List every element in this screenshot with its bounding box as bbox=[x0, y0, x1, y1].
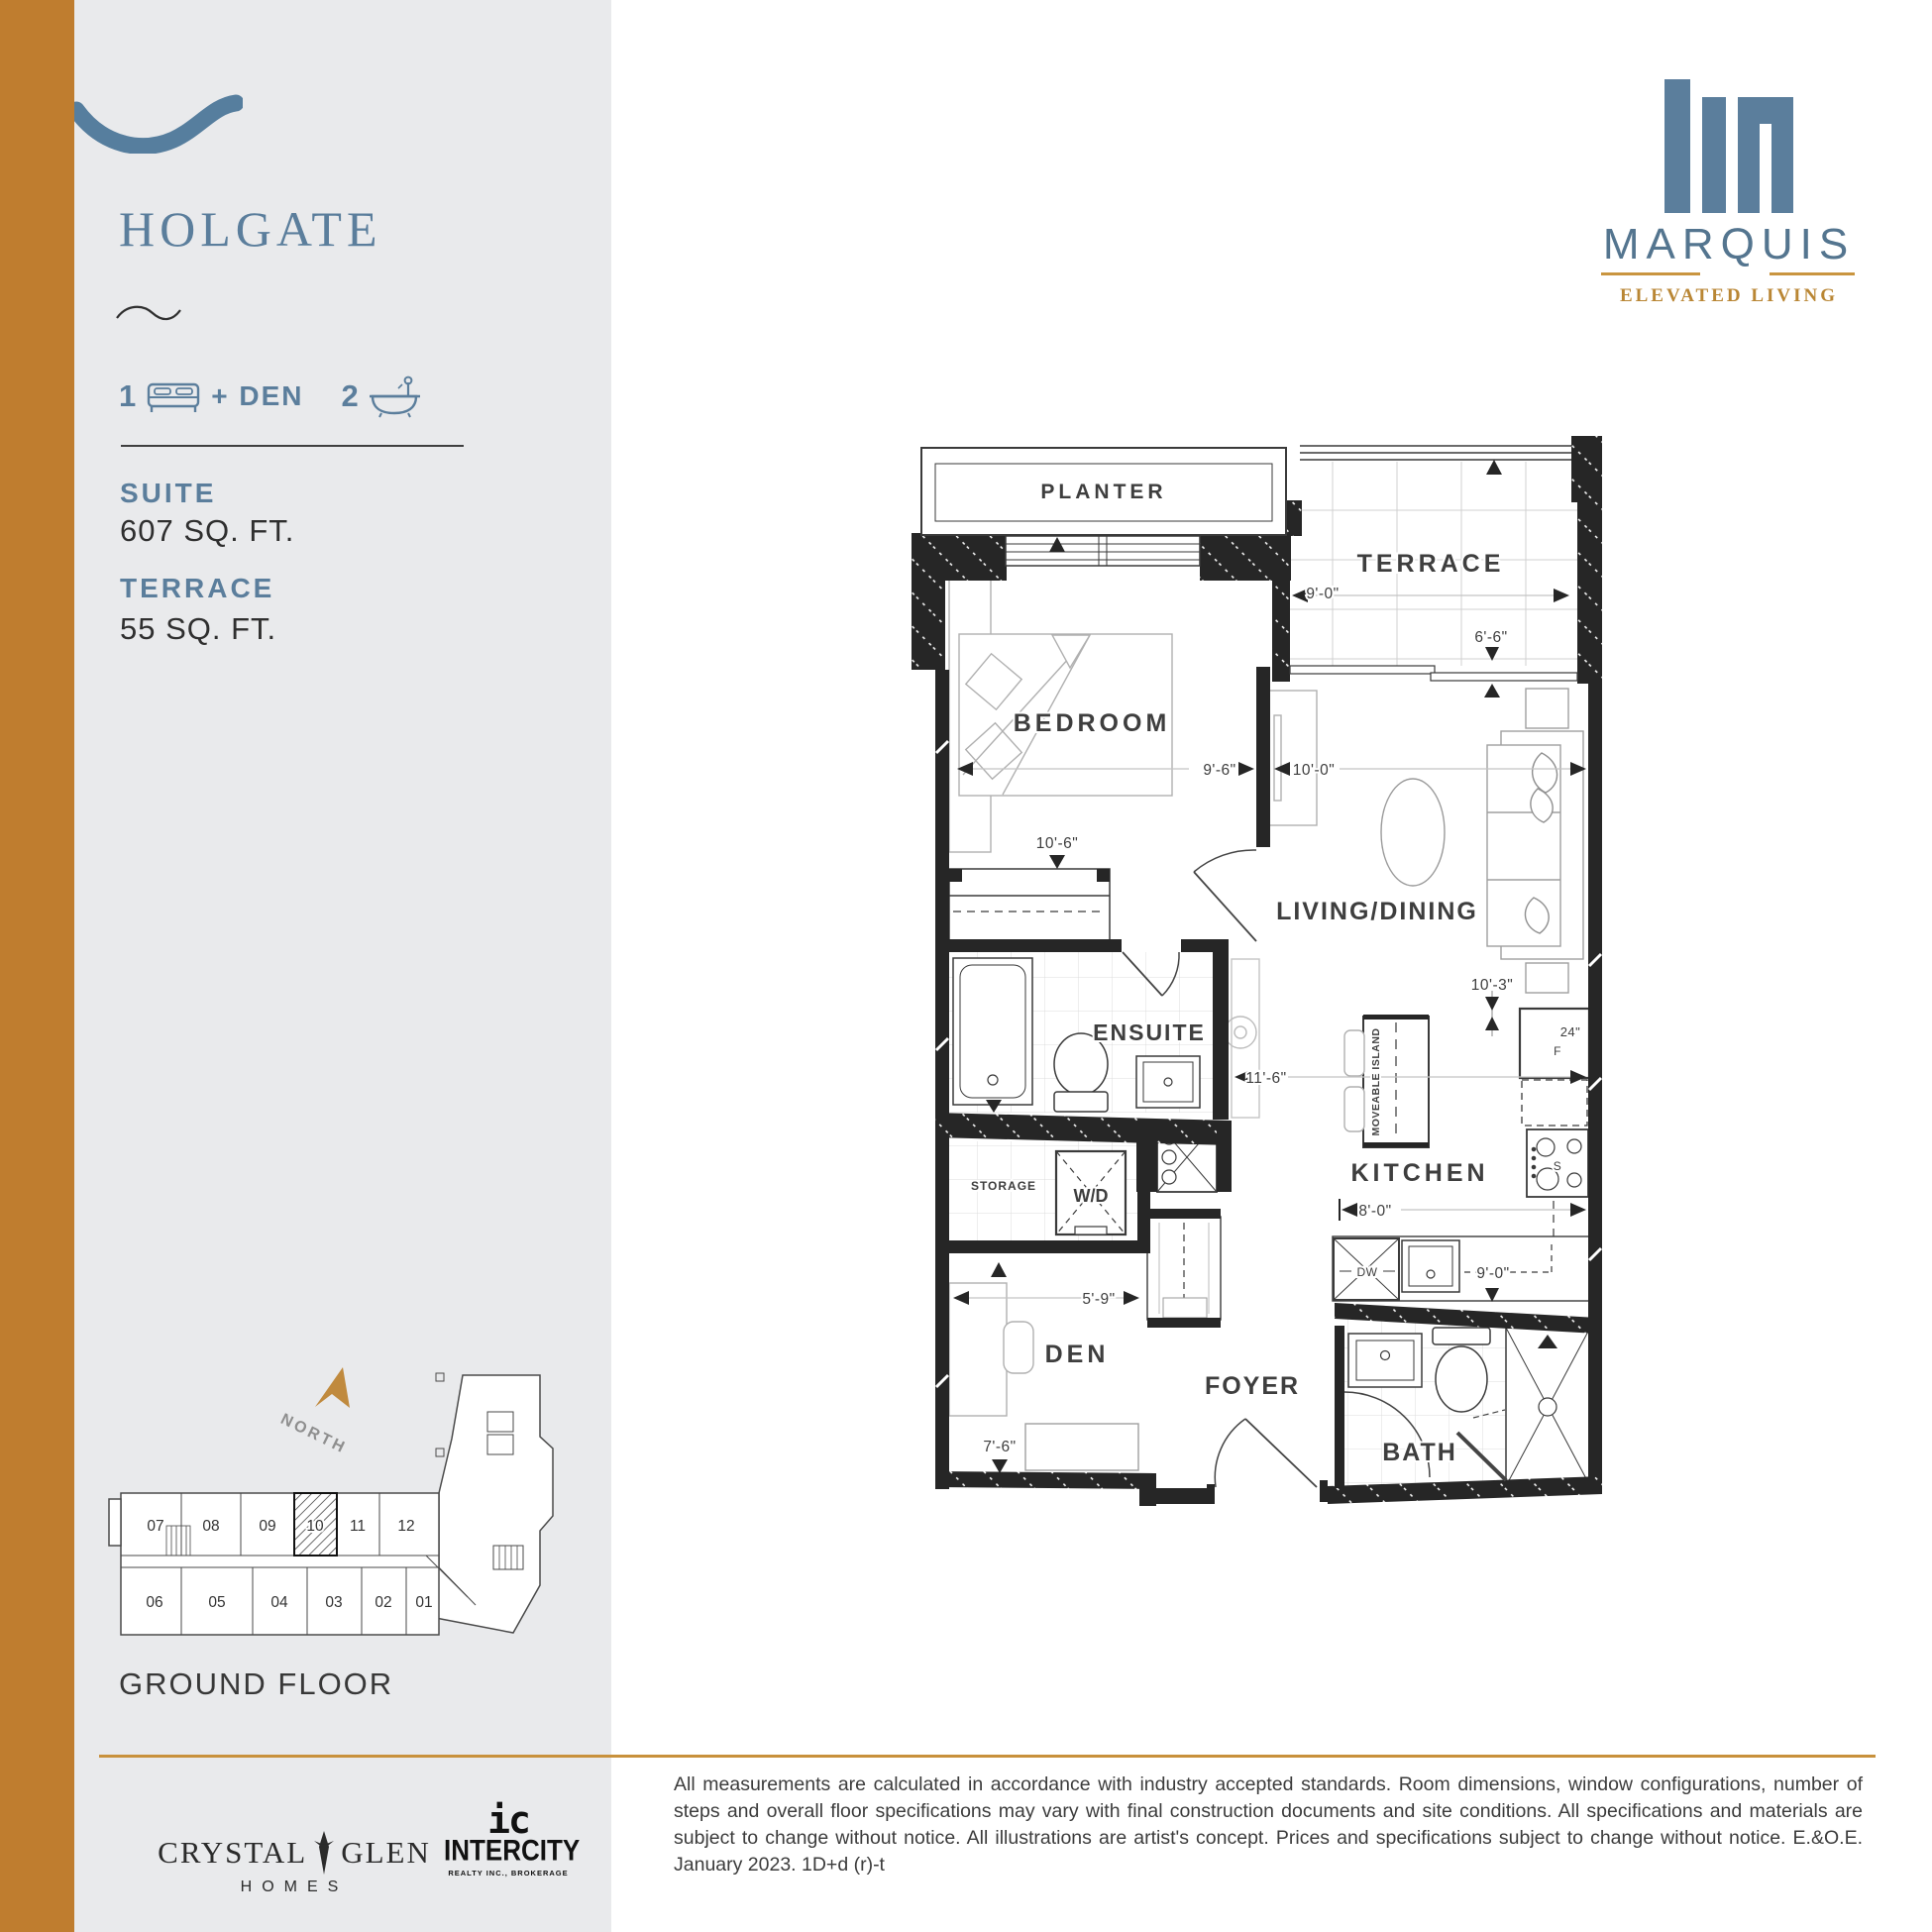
svg-text:08: 08 bbox=[202, 1518, 219, 1535]
crystal-glen-left: CRYSTAL bbox=[158, 1835, 307, 1871]
keyplan-title: GROUND FLOOR bbox=[119, 1666, 393, 1702]
tilde-icon bbox=[115, 300, 184, 328]
svg-text:7'-6": 7'-6" bbox=[983, 1439, 1016, 1455]
bed-bath-row: 1 + DEN 2 bbox=[119, 375, 422, 418]
intercity-logo: ic INTERCITY REALTY INC., BROKERAGE bbox=[444, 1805, 573, 1878]
svg-text:9'-0": 9'-0" bbox=[1476, 1265, 1509, 1282]
intercity-name: INTERCITY bbox=[444, 1833, 573, 1869]
svg-text:02: 02 bbox=[375, 1594, 391, 1611]
suite-label: SUITE bbox=[120, 478, 216, 509]
marquis-m-icon bbox=[1664, 79, 1793, 213]
svg-text:STORAGE: STORAGE bbox=[971, 1179, 1036, 1193]
svg-text:LIVING/DINING: LIVING/DINING bbox=[1276, 898, 1478, 925]
svg-text:07: 07 bbox=[147, 1518, 163, 1535]
brand-name: MARQUIS bbox=[1585, 220, 1873, 269]
legal-disclaimer: All measurements are calculated in accor… bbox=[674, 1771, 1863, 1878]
keyplan: 070809101112060504030201 bbox=[99, 1359, 565, 1647]
suite-area: 607 SQ. FT. bbox=[120, 513, 294, 549]
svg-text:10'-3": 10'-3" bbox=[1471, 977, 1513, 994]
sidebar-divider bbox=[121, 445, 464, 447]
bed-count: 1 bbox=[119, 378, 136, 414]
unit-title: HOLGATE bbox=[119, 200, 382, 258]
svg-text:06: 06 bbox=[146, 1594, 162, 1611]
bath-count: 2 bbox=[342, 378, 359, 414]
svg-text:TERRACE: TERRACE bbox=[1357, 550, 1505, 578]
svg-text:DEN: DEN bbox=[1045, 1341, 1110, 1368]
svg-text:W/D: W/D bbox=[1074, 1186, 1109, 1206]
svg-text:05: 05 bbox=[208, 1594, 225, 1611]
svg-text:BATH: BATH bbox=[1382, 1439, 1457, 1466]
svg-text:10'-0": 10'-0" bbox=[1293, 762, 1335, 779]
intercity-mark: ic bbox=[444, 1805, 573, 1835]
unit-floorplan: PLANTERTERRACEBEDROOMLIVING/DININGENSUIT… bbox=[897, 436, 1615, 1516]
wave-icon bbox=[74, 94, 243, 154]
svg-text:DW: DW bbox=[1357, 1265, 1378, 1279]
svg-text:FOYER: FOYER bbox=[1205, 1372, 1300, 1400]
intercity-tagline: REALTY INC., BROKERAGE bbox=[444, 1869, 573, 1878]
svg-text:03: 03 bbox=[325, 1594, 342, 1611]
crystal-glen-spear-icon bbox=[313, 1831, 335, 1875]
svg-text:04: 04 bbox=[270, 1594, 288, 1611]
bed-icon bbox=[146, 377, 201, 415]
svg-text:24": 24" bbox=[1560, 1024, 1581, 1039]
footer-divider bbox=[99, 1755, 1876, 1758]
svg-text:KITCHEN: KITCHEN bbox=[1350, 1159, 1488, 1187]
brand-tagline: ELEVATED LIVING bbox=[1585, 285, 1873, 307]
brand-underline-right bbox=[1770, 272, 1855, 275]
svg-text:F: F bbox=[1554, 1044, 1561, 1058]
left-accent-bar bbox=[0, 0, 74, 1932]
svg-text:11: 11 bbox=[350, 1518, 366, 1535]
den-label: + DEN bbox=[211, 380, 303, 412]
north-arrow-icon bbox=[315, 1367, 350, 1408]
crystal-glen-right: GLEN bbox=[341, 1835, 431, 1871]
brand-underline-left bbox=[1601, 272, 1700, 275]
marquis-logo: MARQUIS ELEVATED LIVING bbox=[1585, 69, 1873, 376]
svg-text:01: 01 bbox=[415, 1594, 432, 1611]
crystal-glen-logo: CRYSTAL GLEN HOMES bbox=[136, 1831, 453, 1896]
svg-text:10'-6": 10'-6" bbox=[1036, 835, 1078, 852]
svg-text:PLANTER: PLANTER bbox=[1040, 481, 1166, 503]
svg-text:9'-0": 9'-0" bbox=[1306, 586, 1339, 602]
terrace-area: 55 SQ. FT. bbox=[120, 611, 276, 647]
svg-text:5'-9": 5'-9" bbox=[1082, 1291, 1115, 1308]
svg-text:MOVEABLE ISLAND: MOVEABLE ISLAND bbox=[1370, 1027, 1382, 1135]
bathtub-icon bbox=[369, 375, 422, 418]
svg-text:09: 09 bbox=[259, 1518, 275, 1535]
terrace-label: TERRACE bbox=[120, 573, 274, 604]
svg-text:6'-6": 6'-6" bbox=[1474, 629, 1507, 646]
svg-text:S: S bbox=[1554, 1159, 1562, 1173]
floorplan-flyer: HOLGATE 1 + DEN 2 SUITE 607 SQ. FT. TERR… bbox=[0, 0, 1932, 1932]
svg-text:ENSUITE: ENSUITE bbox=[1093, 1020, 1206, 1045]
crystal-glen-sub: HOMES bbox=[136, 1878, 453, 1896]
svg-text:8'-0": 8'-0" bbox=[1358, 1203, 1391, 1220]
svg-text:10: 10 bbox=[306, 1518, 324, 1535]
svg-text:9'-6": 9'-6" bbox=[1203, 762, 1235, 779]
svg-text:BEDROOM: BEDROOM bbox=[1014, 709, 1171, 737]
svg-text:12: 12 bbox=[397, 1518, 414, 1535]
svg-text:11'-6": 11'-6" bbox=[1245, 1070, 1286, 1087]
